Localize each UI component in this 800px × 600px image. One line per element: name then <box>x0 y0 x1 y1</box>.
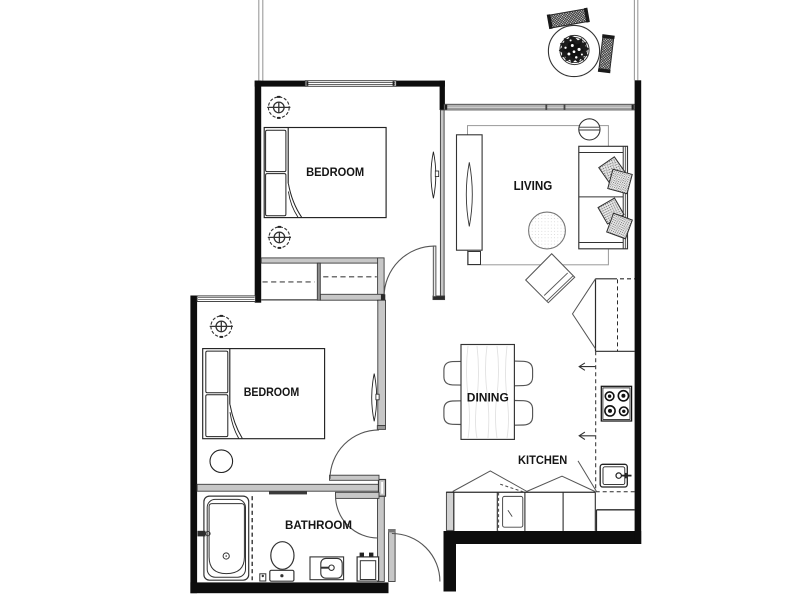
svg-text:BEDROOM: BEDROOM <box>306 165 364 179</box>
svg-text:LIVING: LIVING <box>514 178 553 193</box>
svg-text:BATHROOM: BATHROOM <box>285 518 352 532</box>
svg-text:KITCHEN: KITCHEN <box>518 453 567 467</box>
svg-text:BEDROOM: BEDROOM <box>244 385 300 399</box>
svg-text:DINING: DINING <box>467 390 509 404</box>
